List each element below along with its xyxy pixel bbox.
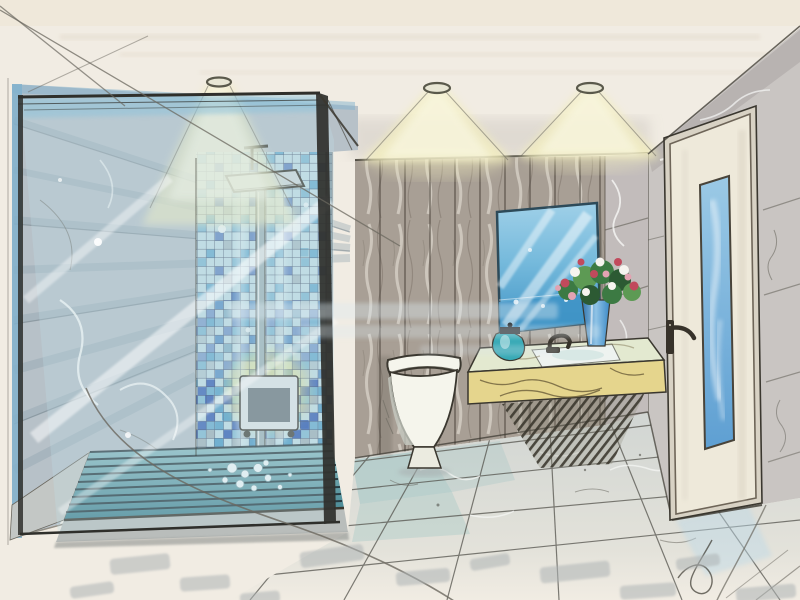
spotlight-fixture <box>577 83 603 93</box>
bathroom-sketch <box>0 0 800 600</box>
spotlight-fixture <box>424 83 450 93</box>
sketch-canvas <box>0 0 800 600</box>
glass-left-post <box>18 95 23 535</box>
spotlight-fixture <box>207 78 231 87</box>
glass-panel-door <box>664 106 762 520</box>
